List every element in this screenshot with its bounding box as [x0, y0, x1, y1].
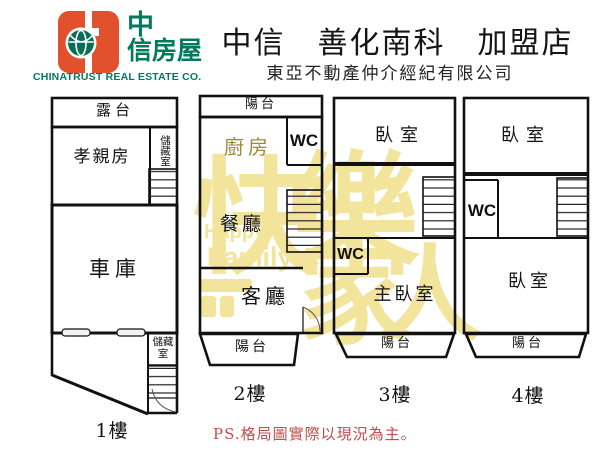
room-label-bedroom-4f-top: 臥室: [486, 126, 566, 147]
room-label-terrace: 露台: [80, 102, 150, 119]
room-label-parents-room: 孝親房: [58, 148, 146, 168]
room-label-garage: 車庫: [75, 257, 155, 281]
room-label-balcony-2f-top: 陽台: [230, 98, 292, 113]
floorplan-drawing: [0, 0, 600, 450]
room-label-balcony-3f: 陽台: [365, 337, 429, 352]
room-label-wc-4f: WC: [465, 201, 499, 221]
room-label-storage-top: 儲藏室: [156, 130, 171, 172]
floor-label-3f: 3樓: [367, 385, 423, 407]
floorplan-flyer: { "header": { "brand_line1": "中", "brand…: [0, 0, 600, 450]
room-label-master-bedroom: 主臥室: [355, 285, 455, 306]
floor-label-2f: 2樓: [222, 384, 278, 406]
room-label-kitchen: 廚房: [209, 136, 287, 159]
footnote: PS.格局圖實際以現況為主。: [213, 423, 417, 444]
room-label-wc-3f: WC: [334, 246, 367, 264]
room-label-living: 客廳: [224, 285, 306, 308]
floor-label-4f: 4樓: [500, 386, 556, 408]
room-label-storage-bottom: 儲藏室: [150, 336, 176, 360]
room-label-balcony-4f: 陽台: [496, 337, 560, 352]
room-label-wc-2f: WC: [287, 131, 321, 151]
room-label-dining: 餐廳: [202, 214, 282, 236]
room-label-bedroom-4f-bottom: 臥室: [490, 272, 570, 293]
floor-label-1f: 1樓: [84, 421, 140, 443]
room-label-bedroom-3f: 臥室: [360, 126, 440, 147]
room-label-balcony-2f-bottom: 陽台: [220, 339, 284, 355]
